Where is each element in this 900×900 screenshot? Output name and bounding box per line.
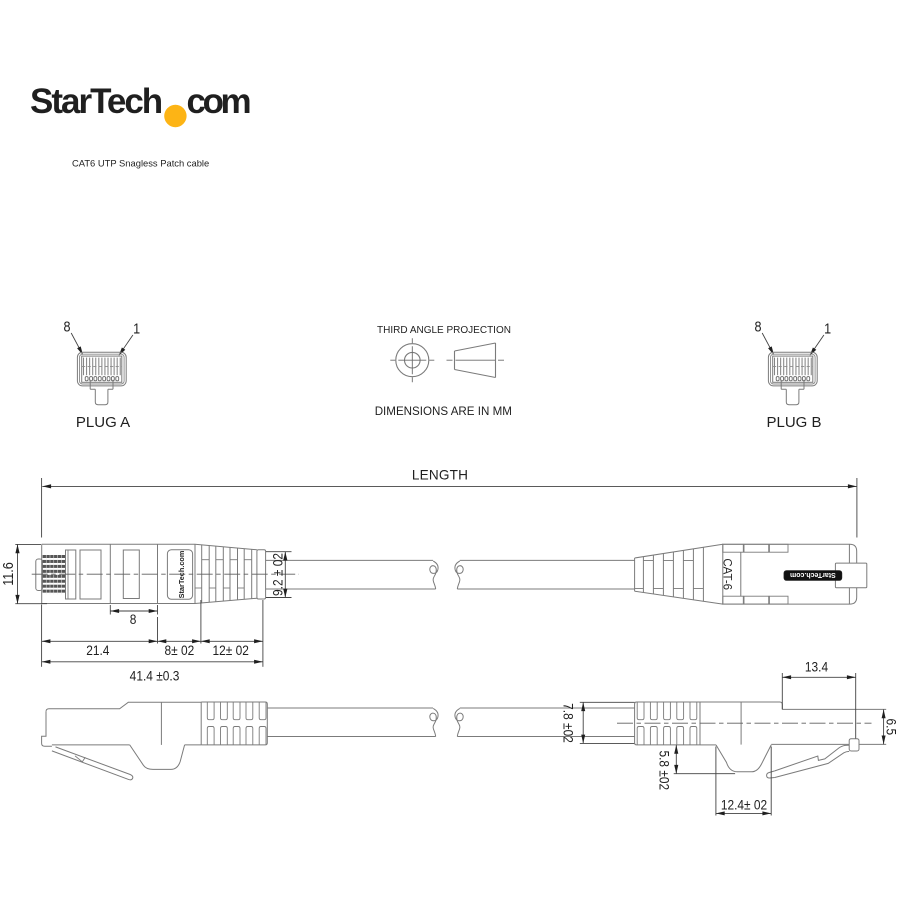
svg-text:12± 02: 12± 02 bbox=[213, 642, 249, 658]
svg-text:13.4: 13.4 bbox=[805, 658, 828, 674]
svg-text:CAT6 UTP Snagless Patch cable: CAT6 UTP Snagless Patch cable bbox=[72, 158, 209, 169]
svg-text:DIMENSIONS ARE IN MM: DIMENSIONS ARE IN MM bbox=[375, 405, 512, 418]
svg-text:6.5: 6.5 bbox=[883, 719, 899, 736]
svg-text:9.2 ± 02: 9.2 ± 02 bbox=[269, 553, 285, 596]
svg-text:StarTech.com: StarTech.com bbox=[790, 571, 836, 578]
svg-text:5.8 ±02: 5.8 ±02 bbox=[656, 750, 672, 790]
svg-text:StarTech: StarTech bbox=[30, 82, 162, 121]
svg-text:1: 1 bbox=[824, 319, 831, 336]
svg-text:PLUG B: PLUG B bbox=[766, 414, 821, 431]
svg-text:21.4: 21.4 bbox=[86, 642, 109, 658]
svg-text:7.8 ±02: 7.8 ±02 bbox=[560, 703, 576, 743]
svg-text:8: 8 bbox=[130, 611, 137, 627]
svg-text:com: com bbox=[187, 82, 250, 121]
svg-text:1: 1 bbox=[133, 319, 140, 336]
svg-text:8± 02: 8± 02 bbox=[165, 642, 195, 658]
svg-text:THIRD ANGLE PROJECTION: THIRD ANGLE PROJECTION bbox=[377, 325, 511, 336]
svg-text:PLUG A: PLUG A bbox=[76, 414, 130, 431]
svg-text:12.4± 02: 12.4± 02 bbox=[721, 797, 767, 813]
svg-text:41.4 ±0.3: 41.4 ±0.3 bbox=[130, 667, 180, 683]
svg-text:8: 8 bbox=[754, 317, 761, 334]
svg-text:8: 8 bbox=[63, 317, 70, 334]
svg-text:11.6: 11.6 bbox=[0, 562, 16, 586]
svg-text:LENGTH: LENGTH bbox=[412, 468, 468, 483]
svg-text:CAT-6: CAT-6 bbox=[721, 558, 733, 590]
